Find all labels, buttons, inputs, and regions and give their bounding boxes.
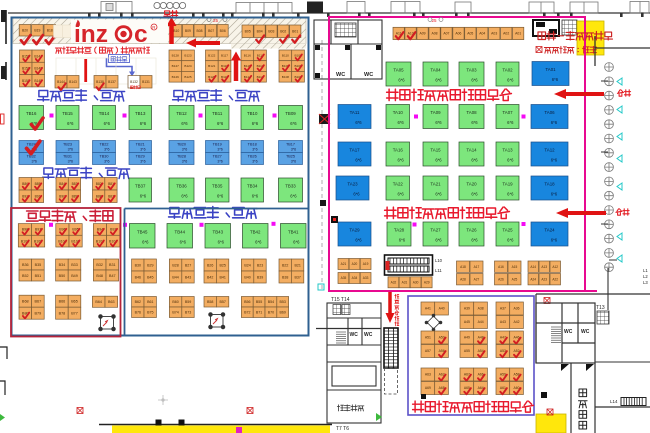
svg-text:A21: A21 xyxy=(341,262,347,266)
svg-text:TA04: TA04 xyxy=(430,68,441,73)
svg-text:WC: WC xyxy=(336,72,345,78)
svg-text:B56: B56 xyxy=(244,300,250,304)
svg-text:6*6: 6*6 xyxy=(507,238,514,243)
svg-text:TA14: TA14 xyxy=(466,148,477,153)
svg-text:B01: B01 xyxy=(292,30,298,34)
svg-text:3*6: 3*6 xyxy=(140,147,145,151)
svg-text:TB45: TB45 xyxy=(137,229,148,234)
svg-text:6*6: 6*6 xyxy=(435,192,442,197)
svg-text:TB34: TB34 xyxy=(247,184,258,189)
svg-text:TA02: TA02 xyxy=(502,68,513,73)
svg-text:6*6: 6*6 xyxy=(397,158,404,163)
svg-text:TB27: TB27 xyxy=(213,154,222,158)
svg-text:6*6: 6*6 xyxy=(217,121,224,126)
svg-text:A20: A20 xyxy=(352,262,358,266)
svg-text:TB22: TB22 xyxy=(99,142,108,146)
svg-text:B63: B63 xyxy=(108,300,115,304)
svg-text:TA28: TA28 xyxy=(394,228,405,233)
svg-text:B22: B22 xyxy=(282,263,288,267)
svg-text:B51: B51 xyxy=(35,274,42,278)
svg-text:TB12: TB12 xyxy=(176,111,187,116)
svg-text:A12: A12 xyxy=(552,265,558,269)
svg-text:3*6: 3*6 xyxy=(68,159,73,163)
svg-text:B70: B70 xyxy=(268,311,274,315)
svg-text:TA15: TA15 xyxy=(430,148,441,153)
svg-text:A01: A01 xyxy=(515,32,521,36)
svg-text:6*6: 6*6 xyxy=(355,158,362,163)
svg-text:6*6: 6*6 xyxy=(140,121,147,126)
svg-text:A22: A22 xyxy=(552,277,558,281)
svg-text:A55: A55 xyxy=(464,349,470,353)
svg-text:TB18: TB18 xyxy=(248,142,257,146)
svg-text:A06: A06 xyxy=(455,32,461,36)
svg-text:B40: B40 xyxy=(244,275,250,279)
svg-text:B78: B78 xyxy=(59,312,66,316)
svg-text:TB17: TB17 xyxy=(286,142,295,146)
svg-text:A42: A42 xyxy=(513,320,519,324)
svg-text:B137: B137 xyxy=(108,80,116,84)
svg-text:6*6: 6*6 xyxy=(142,240,149,245)
svg-text:A44: A44 xyxy=(478,320,484,324)
svg-text:A40: A40 xyxy=(439,307,445,311)
svg-text:3*6: 3*6 xyxy=(217,147,222,151)
svg-text:6*6: 6*6 xyxy=(551,120,558,125)
svg-text:B55: B55 xyxy=(256,300,262,304)
svg-text:B116: B116 xyxy=(244,54,251,58)
svg-text:B05: B05 xyxy=(245,30,251,34)
svg-text:A08: A08 xyxy=(431,32,437,36)
svg-text:TB43: TB43 xyxy=(213,229,224,234)
svg-text:TA09: TA09 xyxy=(430,110,441,115)
svg-text:A45: A45 xyxy=(464,320,470,324)
svg-text:A19: A19 xyxy=(363,262,369,266)
svg-text:B62: B62 xyxy=(135,300,141,304)
svg-text:6*6: 6*6 xyxy=(552,77,559,82)
svg-text:B73: B73 xyxy=(185,311,191,315)
svg-text:25: 25 xyxy=(432,18,438,23)
svg-text:TB41: TB41 xyxy=(288,229,299,234)
svg-text:TA12: TA12 xyxy=(544,148,555,153)
svg-text:6*6: 6*6 xyxy=(252,121,259,126)
svg-text:B37: B37 xyxy=(294,275,300,279)
svg-text:TA11: TA11 xyxy=(350,110,360,115)
svg-text:B131: B131 xyxy=(142,80,150,84)
svg-text:TB09: TB09 xyxy=(285,111,296,116)
svg-text:B09: B09 xyxy=(185,29,191,33)
svg-text:L2: L2 xyxy=(643,274,648,279)
svg-text:WC: WC xyxy=(581,329,590,335)
svg-text:B28: B28 xyxy=(172,263,178,267)
svg-text:6*6: 6*6 xyxy=(551,238,558,243)
svg-text:TB36: TB36 xyxy=(176,184,187,189)
svg-text:6*6: 6*6 xyxy=(507,192,514,197)
svg-text:B44: B44 xyxy=(172,275,178,279)
svg-text:6*6: 6*6 xyxy=(290,121,297,126)
svg-text:B61: B61 xyxy=(147,300,153,304)
svg-text:3*6: 3*6 xyxy=(68,147,73,151)
svg-text:TA01: TA01 xyxy=(545,67,556,72)
svg-text:6*6: 6*6 xyxy=(471,158,478,163)
svg-text:B02: B02 xyxy=(280,30,286,34)
svg-text:TB16: TB16 xyxy=(26,111,37,116)
svg-text:A28: A28 xyxy=(460,277,466,281)
svg-text:6*6: 6*6 xyxy=(435,238,442,243)
svg-text:B31: B31 xyxy=(109,263,116,267)
svg-text:A07: A07 xyxy=(443,32,449,36)
svg-text:L11: L11 xyxy=(435,268,442,273)
svg-text:A04: A04 xyxy=(479,32,485,36)
svg-text:B59: B59 xyxy=(185,300,191,304)
svg-text:B68: B68 xyxy=(22,300,29,304)
svg-text:A34: A34 xyxy=(352,276,358,280)
svg-text:WC: WC xyxy=(350,332,359,338)
svg-text:B32: B32 xyxy=(96,263,103,267)
svg-text:A41: A41 xyxy=(425,307,431,311)
svg-text:A18: A18 xyxy=(460,265,466,269)
svg-text:TB29: TB29 xyxy=(136,154,145,158)
svg-text:B34: B34 xyxy=(59,263,66,267)
svg-text:B126: B126 xyxy=(172,75,180,79)
svg-text:6*6: 6*6 xyxy=(217,194,224,199)
svg-text:B38: B38 xyxy=(282,275,288,279)
svg-text:6*6: 6*6 xyxy=(471,192,478,197)
svg-text:L14: L14 xyxy=(610,399,618,404)
svg-text:6*6: 6*6 xyxy=(471,238,478,243)
svg-text:B64: B64 xyxy=(95,300,102,304)
svg-text:A69: A69 xyxy=(425,386,431,390)
svg-text:B75: B75 xyxy=(147,311,153,315)
svg-text:A63: A63 xyxy=(425,373,431,377)
svg-text:B30: B30 xyxy=(135,263,141,267)
svg-text:A03: A03 xyxy=(491,32,497,36)
svg-text:TB42: TB42 xyxy=(250,229,261,234)
svg-text:6*6: 6*6 xyxy=(255,240,262,245)
svg-text:B20: B20 xyxy=(22,29,28,33)
svg-text:6*6: 6*6 xyxy=(104,121,111,126)
svg-text:TA05: TA05 xyxy=(393,68,404,73)
svg-text:TB10: TB10 xyxy=(247,111,258,116)
svg-text:A49: A49 xyxy=(464,336,470,340)
svg-text:B48: B48 xyxy=(96,274,103,278)
svg-text:B57: B57 xyxy=(219,300,225,304)
svg-text:B79: B79 xyxy=(35,312,42,316)
svg-text:A09: A09 xyxy=(419,32,425,36)
svg-text:B04: B04 xyxy=(257,30,263,34)
svg-text:6*6: 6*6 xyxy=(507,120,514,125)
svg-text:A15: A15 xyxy=(512,265,518,269)
svg-text:TA17: TA17 xyxy=(349,148,360,153)
svg-text:TA03: TA03 xyxy=(466,68,477,73)
svg-text:B76: B76 xyxy=(135,311,141,315)
svg-text:B71: B71 xyxy=(256,311,262,315)
svg-text:6*6: 6*6 xyxy=(355,120,362,125)
svg-text:TB20: TB20 xyxy=(177,142,186,146)
svg-text:3*6: 3*6 xyxy=(104,159,109,163)
svg-text:3*6: 3*6 xyxy=(252,147,257,151)
svg-text:6*6: 6*6 xyxy=(398,78,405,83)
svg-text:TB15: TB15 xyxy=(62,111,73,116)
svg-text:B127: B127 xyxy=(172,64,180,68)
svg-text:6*6: 6*6 xyxy=(181,194,188,199)
svg-text:A37: A37 xyxy=(500,307,506,311)
svg-text:6*6: 6*6 xyxy=(397,192,404,197)
svg-text:B18: B18 xyxy=(47,29,53,33)
svg-text:A27: A27 xyxy=(474,277,480,281)
svg-text:A17: A17 xyxy=(474,265,480,269)
svg-text:A39: A39 xyxy=(464,307,470,311)
svg-text:TA23: TA23 xyxy=(347,182,358,187)
svg-text:6*6: 6*6 xyxy=(551,158,558,163)
svg-text:TB30: TB30 xyxy=(99,154,108,158)
svg-text:L3: L3 xyxy=(643,280,648,285)
svg-text:A25: A25 xyxy=(512,277,518,281)
svg-text:A24: A24 xyxy=(530,277,536,281)
svg-text:TA26: TA26 xyxy=(466,228,477,233)
svg-text:A29: A29 xyxy=(424,281,430,285)
svg-text:A32: A32 xyxy=(391,281,397,285)
svg-text:L1: L1 xyxy=(643,268,648,273)
svg-text:A38: A38 xyxy=(478,307,484,311)
svg-text:TB14: TB14 xyxy=(99,111,110,116)
svg-text:WC: WC xyxy=(564,329,573,335)
svg-text:6*6: 6*6 xyxy=(180,240,187,245)
svg-text:B58: B58 xyxy=(207,300,213,304)
svg-text:B54: B54 xyxy=(268,300,274,304)
svg-text:3*6: 3*6 xyxy=(104,147,109,151)
svg-text:B36: B36 xyxy=(22,263,29,267)
svg-text:A02: A02 xyxy=(503,32,509,36)
svg-text:WC: WC xyxy=(364,332,373,338)
svg-text:6*6: 6*6 xyxy=(471,78,478,83)
svg-text:T7 T6: T7 T6 xyxy=(336,426,349,432)
svg-text:6*6: 6*6 xyxy=(181,121,188,126)
svg-text:A16: A16 xyxy=(498,265,504,269)
svg-text:B47: B47 xyxy=(109,274,116,278)
svg-text:6*6: 6*6 xyxy=(435,78,442,83)
svg-text:TA24: TA24 xyxy=(544,228,555,233)
svg-text:3*6: 3*6 xyxy=(31,159,36,163)
svg-text:TB11: TB11 xyxy=(212,111,223,116)
svg-text:3*6: 3*6 xyxy=(182,147,187,151)
svg-text:B21: B21 xyxy=(294,263,300,267)
svg-text:B24: B24 xyxy=(244,263,250,267)
svg-text:TB26: TB26 xyxy=(248,154,257,158)
svg-text:B122: B122 xyxy=(208,54,216,58)
svg-text:TA13: TA13 xyxy=(502,148,513,153)
svg-text:A26: A26 xyxy=(498,277,504,281)
svg-text:B143: B143 xyxy=(69,80,77,84)
svg-text:6*6: 6*6 xyxy=(290,194,297,199)
svg-text:B67: B67 xyxy=(35,300,42,304)
svg-text:6*6: 6*6 xyxy=(507,78,514,83)
svg-text:A36: A36 xyxy=(513,307,519,311)
svg-text:TB37: TB37 xyxy=(135,184,146,189)
svg-text:25: 25 xyxy=(213,18,219,23)
svg-text:6*6: 6*6 xyxy=(252,194,259,199)
svg-text:A14: A14 xyxy=(530,265,536,269)
svg-text:B27: B27 xyxy=(185,263,191,267)
svg-text:TA10: TA10 xyxy=(393,110,404,115)
svg-text:B50: B50 xyxy=(59,274,66,278)
svg-text:B77: B77 xyxy=(71,312,78,316)
svg-text:TA08: TA08 xyxy=(466,110,477,115)
svg-text:3*6: 3*6 xyxy=(252,159,257,163)
svg-text:TA06: TA06 xyxy=(544,110,555,115)
svg-text:B39: B39 xyxy=(257,275,263,279)
svg-text:6*6: 6*6 xyxy=(353,192,360,197)
svg-text:TA29: TA29 xyxy=(349,228,360,233)
svg-text:3*6: 3*6 xyxy=(291,147,296,151)
svg-text:B23: B23 xyxy=(257,263,263,267)
svg-text:B06: B06 xyxy=(220,29,226,33)
svg-text:B144: B144 xyxy=(57,80,65,84)
svg-text:TB33: TB33 xyxy=(285,184,296,189)
svg-text:3*6: 3*6 xyxy=(182,159,187,163)
svg-text:6*6: 6*6 xyxy=(399,238,406,243)
svg-text:A23: A23 xyxy=(541,277,547,281)
svg-text:B74: B74 xyxy=(172,311,178,315)
svg-text:A33: A33 xyxy=(363,276,369,280)
svg-text:WC: WC xyxy=(364,72,373,78)
svg-text:B41: B41 xyxy=(219,275,225,279)
svg-text:B69: B69 xyxy=(279,311,285,315)
svg-text:T15 T14: T15 T14 xyxy=(331,297,350,303)
svg-text:6*6: 6*6 xyxy=(218,240,225,245)
svg-text:A51: A51 xyxy=(425,336,431,340)
svg-text:T13: T13 xyxy=(596,305,605,311)
svg-text:TA20: TA20 xyxy=(466,182,477,187)
svg-text:B65: B65 xyxy=(71,300,78,304)
svg-text:A35: A35 xyxy=(341,276,347,280)
svg-text:B07: B07 xyxy=(208,29,214,33)
svg-text:TA16: TA16 xyxy=(393,148,404,153)
svg-text:A57: A57 xyxy=(425,349,431,353)
svg-text:B108: B108 xyxy=(282,75,290,79)
svg-text:TA07: TA07 xyxy=(502,110,513,115)
svg-text:TB35: TB35 xyxy=(212,184,223,189)
svg-text:B66: B66 xyxy=(59,300,66,304)
svg-text:TB21: TB21 xyxy=(136,142,145,146)
svg-text:B33: B33 xyxy=(71,263,78,267)
svg-text:B52: B52 xyxy=(22,274,29,278)
svg-text:B125: B125 xyxy=(184,75,192,79)
svg-text:6*6: 6*6 xyxy=(471,120,478,125)
svg-text:6*6: 6*6 xyxy=(140,194,147,199)
svg-text:TA19: TA19 xyxy=(502,182,513,187)
svg-text:TA25: TA25 xyxy=(502,228,513,233)
svg-text:B43: B43 xyxy=(185,275,191,279)
svg-text:B117: B117 xyxy=(221,54,228,58)
svg-text:B60: B60 xyxy=(172,300,178,304)
svg-text:B128: B128 xyxy=(172,54,180,58)
svg-text:B45: B45 xyxy=(147,275,153,279)
svg-text:B03: B03 xyxy=(268,30,274,34)
svg-text:B25: B25 xyxy=(219,263,225,267)
svg-text:B123: B123 xyxy=(184,54,192,58)
svg-text:TA22: TA22 xyxy=(393,182,404,187)
svg-text:TB19: TB19 xyxy=(213,142,222,146)
svg-text:B53: B53 xyxy=(279,300,285,304)
svg-text:6*6: 6*6 xyxy=(355,238,362,243)
svg-text:3*6: 3*6 xyxy=(217,159,222,163)
svg-text:3*6: 3*6 xyxy=(291,159,296,163)
svg-text:B49: B49 xyxy=(71,274,78,278)
svg-text:6*6: 6*6 xyxy=(435,120,442,125)
svg-text:TB23: TB23 xyxy=(63,142,72,146)
svg-text:3*6: 3*6 xyxy=(140,159,145,163)
svg-text:B10: B10 xyxy=(173,29,179,33)
svg-text:B124: B124 xyxy=(184,64,192,68)
svg-text:B08: B08 xyxy=(196,29,202,33)
svg-text:6*6: 6*6 xyxy=(293,240,300,245)
svg-text:TA21: TA21 xyxy=(430,182,441,187)
svg-text:B35: B35 xyxy=(35,263,42,267)
svg-text:B132: B132 xyxy=(130,80,138,84)
svg-text:A31: A31 xyxy=(402,281,408,285)
svg-text:A30: A30 xyxy=(413,281,419,285)
svg-text:B42: B42 xyxy=(207,275,213,279)
svg-text:6*6: 6*6 xyxy=(397,120,404,125)
svg-text:6*6: 6*6 xyxy=(67,121,74,126)
svg-text:6*6: 6*6 xyxy=(551,192,558,197)
svg-text:A43: A43 xyxy=(500,320,506,324)
svg-text:B121: B121 xyxy=(208,64,216,68)
svg-text:B29: B29 xyxy=(147,263,153,267)
svg-text:6*6: 6*6 xyxy=(435,158,442,163)
svg-text:TA18: TA18 xyxy=(544,182,555,187)
svg-text:A05: A05 xyxy=(467,32,473,36)
svg-text:TB25: TB25 xyxy=(286,154,295,158)
svg-text:TB44: TB44 xyxy=(175,229,186,234)
svg-text:A13: A13 xyxy=(541,265,547,269)
svg-text:B72: B72 xyxy=(244,311,250,315)
svg-text:TA27: TA27 xyxy=(430,228,441,233)
svg-text:6*6: 6*6 xyxy=(507,158,514,163)
svg-text:L10: L10 xyxy=(435,258,443,263)
svg-text:TB31: TB31 xyxy=(63,154,72,158)
svg-text:c: c xyxy=(134,21,148,48)
svg-text:B19: B19 xyxy=(34,29,40,33)
svg-text:TB28: TB28 xyxy=(177,154,186,158)
svg-text:B46: B46 xyxy=(135,275,141,279)
svg-text:B26: B26 xyxy=(207,263,213,267)
svg-text:TB13: TB13 xyxy=(135,111,146,116)
svg-text:B110: B110 xyxy=(282,54,289,58)
